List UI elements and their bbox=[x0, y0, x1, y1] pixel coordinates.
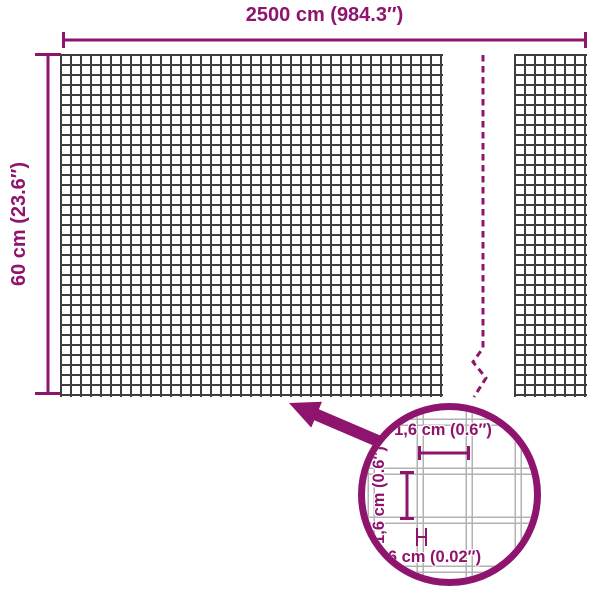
height-dimension-line bbox=[35, 53, 61, 395]
height-dimension-label: 60 cm (23.6″) bbox=[8, 144, 32, 304]
cell-width-label: 1,6 cm (0.6″) bbox=[382, 421, 504, 439]
wire-thickness-label: 0,06 cm (0.02″) bbox=[359, 548, 487, 566]
wire-thickness-marker bbox=[416, 528, 427, 546]
cell-width-dimension-line bbox=[418, 446, 470, 460]
mesh-panel-continuation bbox=[514, 54, 587, 397]
width-dimension-line bbox=[62, 32, 587, 48]
break-line-icon bbox=[460, 50, 510, 402]
cell-height-label: 1,6 cm (0.6″) bbox=[370, 434, 390, 556]
magnifier-circle: 1,6 cm (0.6″) 1,6 cm (0.6″) 0,06 cm (0.0… bbox=[358, 403, 541, 586]
mesh-dimension-diagram: 2500 cm (984.3″) 60 cm (23.6″) 1,6 cm (0… bbox=[0, 0, 600, 600]
mesh-panel-main bbox=[60, 54, 443, 397]
cell-height-dimension-line bbox=[400, 471, 414, 520]
width-dimension-label: 2500 cm (984.3″) bbox=[62, 4, 587, 27]
